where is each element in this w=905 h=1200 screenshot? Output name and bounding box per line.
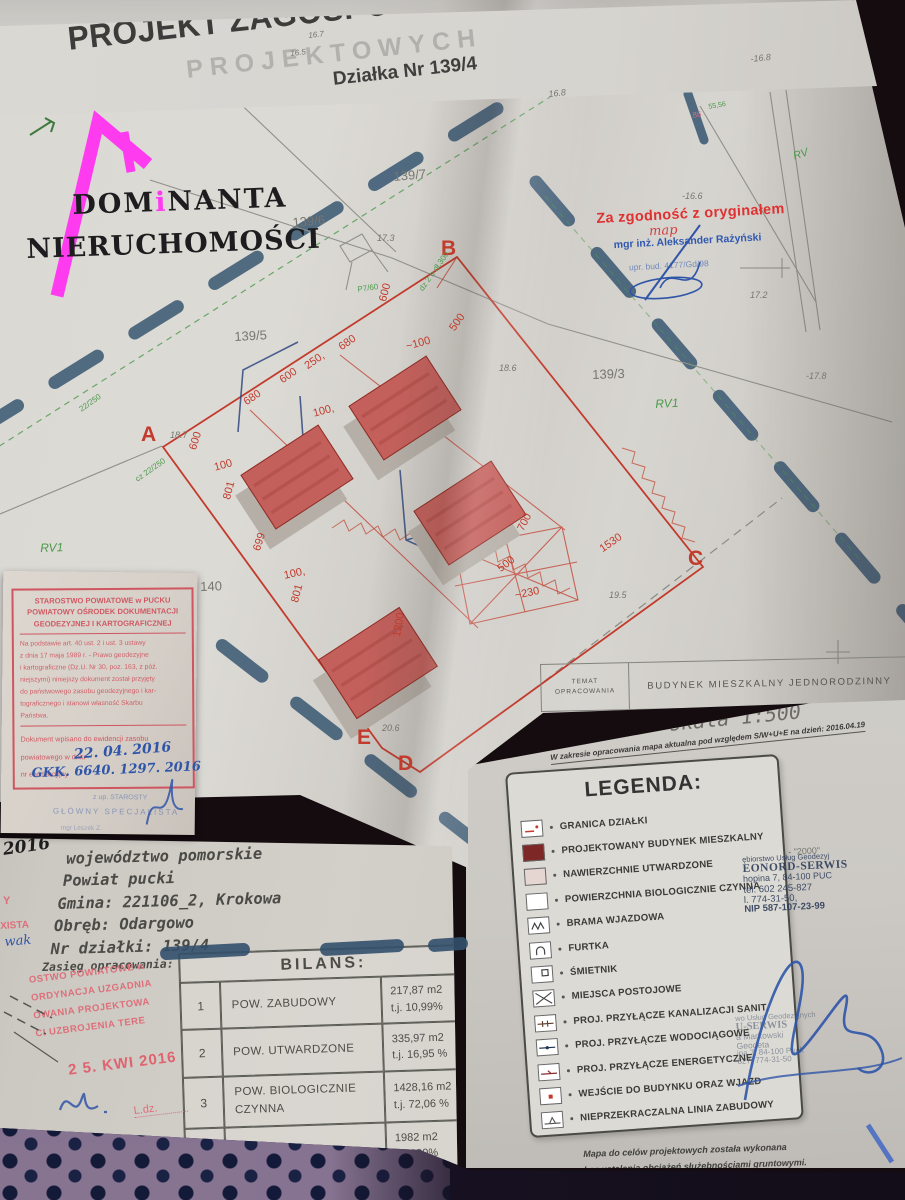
handwritten-fragment: wak bbox=[4, 934, 32, 949]
bullet bbox=[550, 825, 553, 828]
paved-surface-icon bbox=[524, 868, 547, 886]
plot-label: 139/7 bbox=[393, 167, 427, 183]
building-icon bbox=[522, 844, 545, 862]
ldz-label: L.dz. bbox=[133, 1099, 188, 1118]
bullet bbox=[551, 850, 554, 853]
wicket-icon bbox=[529, 941, 552, 959]
soil-label: RV bbox=[866, 11, 881, 22]
zigzag-edge bbox=[622, 448, 695, 542]
elevation-mark: 17.2 bbox=[750, 291, 768, 300]
bilans-row-value: 217,87 m2t.j. 10,99% bbox=[381, 974, 469, 1024]
plot-label: 139/3 bbox=[592, 367, 625, 381]
parking-icon bbox=[532, 990, 555, 1008]
coordination-date: 2 5. KWI 2016 bbox=[67, 1042, 230, 1079]
coordination-stamp: OSTWO POWIATOWE w ORDYNACJA UZGADNIA OWA… bbox=[28, 949, 236, 1130]
tiny-mark: 86 bbox=[692, 110, 702, 119]
sewer-line-icon bbox=[534, 1014, 557, 1032]
document-photo: MAPA DO skala 1:500 W zakresie opracowan… bbox=[0, 0, 905, 1200]
proposed-buildings bbox=[228, 356, 534, 739]
vertex-letter: C bbox=[688, 548, 703, 569]
bullet bbox=[557, 923, 560, 926]
bullet bbox=[562, 996, 565, 999]
surveyor-stamp-faded: wo Usług Geodezyjnych U-SERWIS a Markows… bbox=[735, 1011, 818, 1066]
trash-icon bbox=[531, 965, 554, 983]
vertex-letter: A bbox=[141, 424, 156, 445]
legend-box: LEGENDA: GRANICA DZIAŁKI PROJEKTOWANY BU… bbox=[505, 754, 804, 1138]
plot-label: 139/5 bbox=[234, 328, 267, 343]
elevation-mark: 18.6 bbox=[499, 364, 517, 373]
handwritten-year: 2016 bbox=[2, 835, 51, 858]
plot-label: 140 bbox=[200, 579, 222, 593]
elevation-mark: 16.5 bbox=[290, 48, 306, 58]
bullet bbox=[567, 1069, 570, 1072]
power-line-icon bbox=[537, 1063, 560, 1081]
elevation-mark: -17.8 bbox=[806, 372, 827, 381]
entrance-icon bbox=[539, 1087, 562, 1105]
bilans-row-name: POW. ZABUDOWY bbox=[220, 977, 382, 1029]
elevation-mark: 16.7 bbox=[308, 30, 324, 40]
bullet bbox=[565, 1044, 568, 1047]
surveyor-stamp: ębiorstwo Usług Geodezyj EONORD-SERWIS h… bbox=[742, 851, 850, 914]
soil-label: RV1 bbox=[655, 397, 679, 410]
registry-stamp-paper: STAROSTWO POWIATOWE w PUCKU POWIATOWY OŚ… bbox=[1, 571, 198, 835]
elevation-mark: 17.3 bbox=[377, 234, 395, 243]
power-line bbox=[0, 78, 580, 452]
elevation-mark: -16.8 bbox=[750, 53, 771, 64]
utility-line bbox=[238, 342, 298, 432]
elevation-mark: -16.6 bbox=[682, 192, 703, 201]
setback-line-icon bbox=[541, 1111, 564, 1129]
cut-stamp-fragment: Y bbox=[3, 896, 10, 907]
bilans-row-value: 335,97 m2t.j. 16,95 % bbox=[382, 1021, 470, 1072]
bullet bbox=[555, 898, 558, 901]
survey-line bbox=[786, 90, 820, 330]
building bbox=[401, 461, 534, 585]
elevation-mark: 19.5 bbox=[609, 591, 627, 600]
bullet bbox=[558, 947, 561, 950]
plot-label: 139/6 bbox=[292, 213, 326, 229]
soil-label: RV1 bbox=[40, 541, 64, 554]
subject-table-value: BUDYNEK MIESZKALNY JEDNORODZINNY bbox=[629, 657, 905, 709]
bilans-row-name: POW. BIOLOGICZNIE CZYNNA bbox=[223, 1072, 386, 1128]
bullet bbox=[563, 1020, 566, 1023]
bullet bbox=[570, 1117, 573, 1120]
water-line-icon bbox=[536, 1038, 559, 1056]
survey-line bbox=[392, 258, 548, 324]
bilans-row-value: 1428,16 m2t.j. 72,06 % bbox=[384, 1069, 473, 1123]
subject-table-label: TEMAT OPRACOWANIA bbox=[541, 663, 630, 711]
certification-stamp: Za zgodność z oryginałem map mgr inż. Al… bbox=[596, 202, 787, 273]
bullet bbox=[553, 874, 556, 877]
building bbox=[228, 425, 361, 549]
official-signature bbox=[1, 571, 198, 835]
elevation-mark: 18.7 bbox=[170, 431, 188, 440]
cut-stamp-fragment: XISTA bbox=[0, 920, 29, 931]
survey-line bbox=[150, 180, 392, 258]
bullet bbox=[560, 971, 563, 974]
legend-items: GRANICA DZIAŁKI PROJEKTOWANY BUDYNEK MIE… bbox=[520, 799, 794, 1133]
gate-icon bbox=[527, 917, 550, 935]
parcel-info-block: województwo pomorskie Powiat pucki Gmina… bbox=[58, 842, 283, 960]
bilans-row-name: POW. UTWARDZONE bbox=[221, 1024, 383, 1077]
vertex-letter: E bbox=[357, 727, 371, 748]
scope-dash bbox=[428, 937, 469, 953]
vertex-letter: D bbox=[398, 753, 413, 774]
elevation-mark: 20.6 bbox=[382, 724, 400, 733]
bullet bbox=[569, 1093, 572, 1096]
parcel-boundary-icon bbox=[520, 819, 543, 837]
north-arrow-icon bbox=[30, 118, 54, 135]
building bbox=[336, 356, 469, 480]
bio-area-icon bbox=[525, 892, 548, 910]
